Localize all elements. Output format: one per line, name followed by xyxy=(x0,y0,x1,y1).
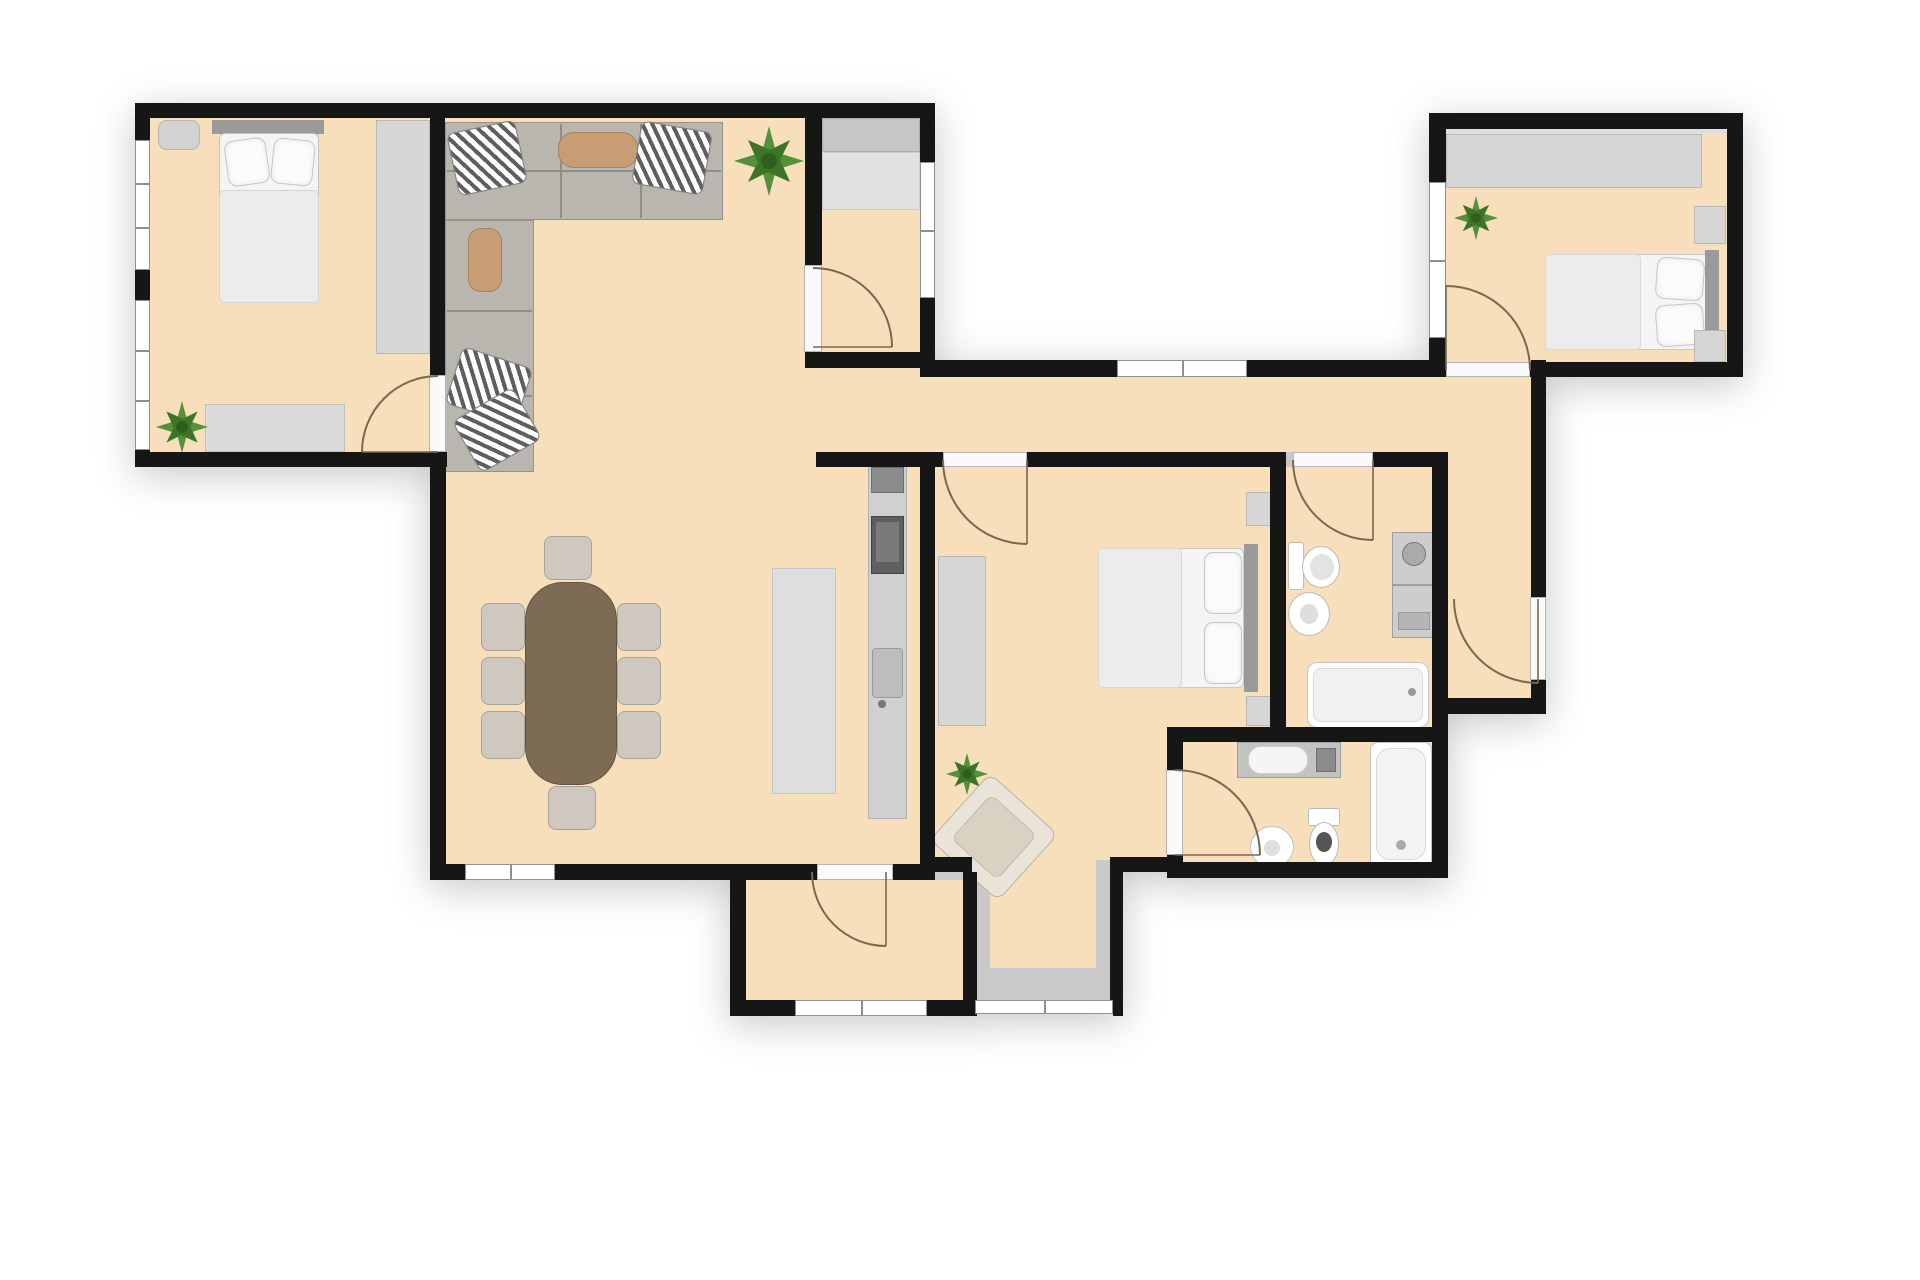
plant-tr xyxy=(1454,190,1498,246)
wall-corridor-top-b xyxy=(1247,360,1429,377)
kitchen-appliance xyxy=(871,467,904,493)
sofa-seam-4 xyxy=(447,310,532,312)
washing-machine-panel xyxy=(1398,612,1430,630)
wall-tr-top xyxy=(1429,113,1743,129)
window-mullion xyxy=(861,1001,863,1015)
washing-machine-divider xyxy=(1392,584,1436,586)
window-bedroom-tr xyxy=(1429,182,1446,338)
dining-chair-l1 xyxy=(481,603,525,651)
window-mullion xyxy=(1044,1001,1046,1013)
window-bedroom-tl-lower xyxy=(135,300,150,450)
sofa-pillow-striped-2 xyxy=(631,120,713,196)
wall-tr-right xyxy=(1727,113,1743,377)
wardrobe-tl xyxy=(376,120,430,354)
bidet-lower-inner xyxy=(1264,840,1280,856)
wall-tl-bottom xyxy=(135,452,447,467)
wall-tl-right xyxy=(430,118,445,375)
wall-lowbath-bottom xyxy=(1167,862,1448,878)
wall-hall-right-a xyxy=(1531,360,1546,597)
wall-vestibule-bottom xyxy=(805,352,935,368)
wardrobe-middle-bedroom xyxy=(938,556,986,726)
wall-corridor-bottom-b xyxy=(1027,452,1270,467)
wall-living-left xyxy=(430,467,446,864)
pouf-tl xyxy=(158,120,200,150)
doorway-hall-exit xyxy=(1530,597,1546,680)
sofa-pillow-tan-1 xyxy=(558,132,638,168)
bed-tl-duvet xyxy=(219,190,319,303)
sideboard-island xyxy=(772,568,836,794)
window-corridor xyxy=(1117,360,1247,377)
wall-tl-left-a xyxy=(135,118,150,140)
kitchen-oven-inner xyxy=(876,522,899,562)
bed-tl-pillow-2 xyxy=(270,137,317,187)
vestibule-closet xyxy=(822,118,920,152)
nightstand-middle-2 xyxy=(1246,696,1272,726)
window-mullion xyxy=(510,865,512,879)
doorway-vestibule xyxy=(804,265,822,352)
dining-chair-l2 xyxy=(481,657,525,705)
doorway-lower-bathroom xyxy=(1166,770,1183,855)
window-mullion xyxy=(136,350,149,352)
plant-tl xyxy=(156,400,208,454)
wall-midbed-bath xyxy=(1270,452,1286,742)
wardrobe-tr xyxy=(1446,134,1702,188)
doorway-small-room xyxy=(817,864,893,880)
wall-corridor-bottom-a xyxy=(816,452,943,467)
dining-chair-r1 xyxy=(617,603,661,651)
nightstand-tr-2 xyxy=(1694,330,1726,362)
wall-tl-left-b xyxy=(135,270,150,300)
bed-tl-headboard xyxy=(212,120,324,134)
wall-bath-right xyxy=(1432,452,1448,878)
wall-top-main xyxy=(135,103,935,118)
bed-tr-duvet xyxy=(1545,254,1641,350)
wall-porch-right xyxy=(1110,872,1123,1000)
wall-porch-corner xyxy=(1113,1000,1123,1016)
nightstand-middle-1 xyxy=(1246,492,1272,526)
doorway-bedroom-tl xyxy=(429,375,446,452)
dining-chair-r3 xyxy=(617,711,661,759)
plant-icon xyxy=(156,400,208,454)
dining-table xyxy=(525,582,617,785)
window-mullion xyxy=(136,400,149,402)
bed-middle-duvet xyxy=(1098,548,1182,688)
corridor-floor xyxy=(920,377,1531,452)
nightstand-tr-1 xyxy=(1694,206,1726,244)
wall-tr-bottom-b xyxy=(1530,362,1743,377)
wall-smallroom-bottom-a xyxy=(746,1000,795,1016)
sofa-pillow-tan-2 xyxy=(468,228,502,292)
hall-floor xyxy=(1448,377,1531,698)
window-small-room xyxy=(795,1000,927,1016)
floor-plan-canvas xyxy=(0,0,1920,1280)
window-mullion xyxy=(136,183,149,185)
shower-upper-inner xyxy=(1313,668,1423,722)
doorway-middle-bedroom xyxy=(943,452,1027,467)
window-vestibule xyxy=(920,162,935,298)
doorway-upper-bathroom xyxy=(1293,452,1373,467)
wall-smallroom-left xyxy=(730,864,746,1016)
small-room-floor xyxy=(746,880,963,1000)
plant-icon xyxy=(734,122,804,200)
doorway-bedroom-tr xyxy=(1446,362,1530,377)
bed-middle-headboard xyxy=(1244,544,1258,692)
kitchen-faucet xyxy=(878,700,886,708)
wall-nook-stub-left xyxy=(920,857,972,872)
window-mullion xyxy=(136,227,149,229)
desk-tl xyxy=(205,404,345,452)
plant-living xyxy=(734,122,804,200)
wall-smallroom-right xyxy=(963,872,977,1016)
wall-tr-bottom-a xyxy=(1429,362,1446,377)
vanity-basin xyxy=(1248,746,1308,774)
wall-divider-low xyxy=(920,467,935,880)
window-dining xyxy=(465,864,555,880)
floor-plan xyxy=(0,0,1920,1280)
bidet-upper-inner xyxy=(1300,604,1318,624)
bed-tl-pillow-1 xyxy=(223,136,271,187)
bathtub-drain xyxy=(1396,840,1406,850)
washing-machine-door xyxy=(1402,542,1426,566)
window-porch-threshold xyxy=(975,1000,1113,1014)
dining-chair-top xyxy=(544,536,592,580)
bed-middle-pillow-1 xyxy=(1204,552,1242,614)
wall-lowbath-top xyxy=(1167,727,1448,742)
wall-vestibule-left xyxy=(805,118,822,265)
dining-chair-bottom xyxy=(548,786,596,830)
dining-chair-l3 xyxy=(481,711,525,759)
wall-nook-stub-right xyxy=(1110,857,1167,872)
kitchen-sink xyxy=(872,648,903,698)
toilet-upper-seat xyxy=(1310,554,1334,580)
toilet-lower-inner xyxy=(1316,832,1332,852)
window-mullion xyxy=(1182,361,1184,376)
wall-lowbath-left-a xyxy=(1167,742,1183,770)
wall-dining-bottom-a xyxy=(430,864,465,880)
wall-hall-right-b xyxy=(1531,680,1546,714)
wall-corridor-top-a xyxy=(920,360,1117,377)
dining-chair-r2 xyxy=(617,657,661,705)
window-mullion xyxy=(921,230,934,232)
bed-tr-pillow-1 xyxy=(1655,256,1706,301)
plant-icon xyxy=(1454,190,1498,246)
window-bedroom-tl-upper xyxy=(135,140,150,270)
bed-middle-pillow-2 xyxy=(1204,622,1242,684)
window-mullion xyxy=(1430,260,1445,262)
vanity-faucet xyxy=(1316,748,1336,772)
shower-upper-drain xyxy=(1408,688,1416,696)
vestibule-mat xyxy=(822,152,920,210)
wall-dining-bottom-b xyxy=(555,864,817,880)
